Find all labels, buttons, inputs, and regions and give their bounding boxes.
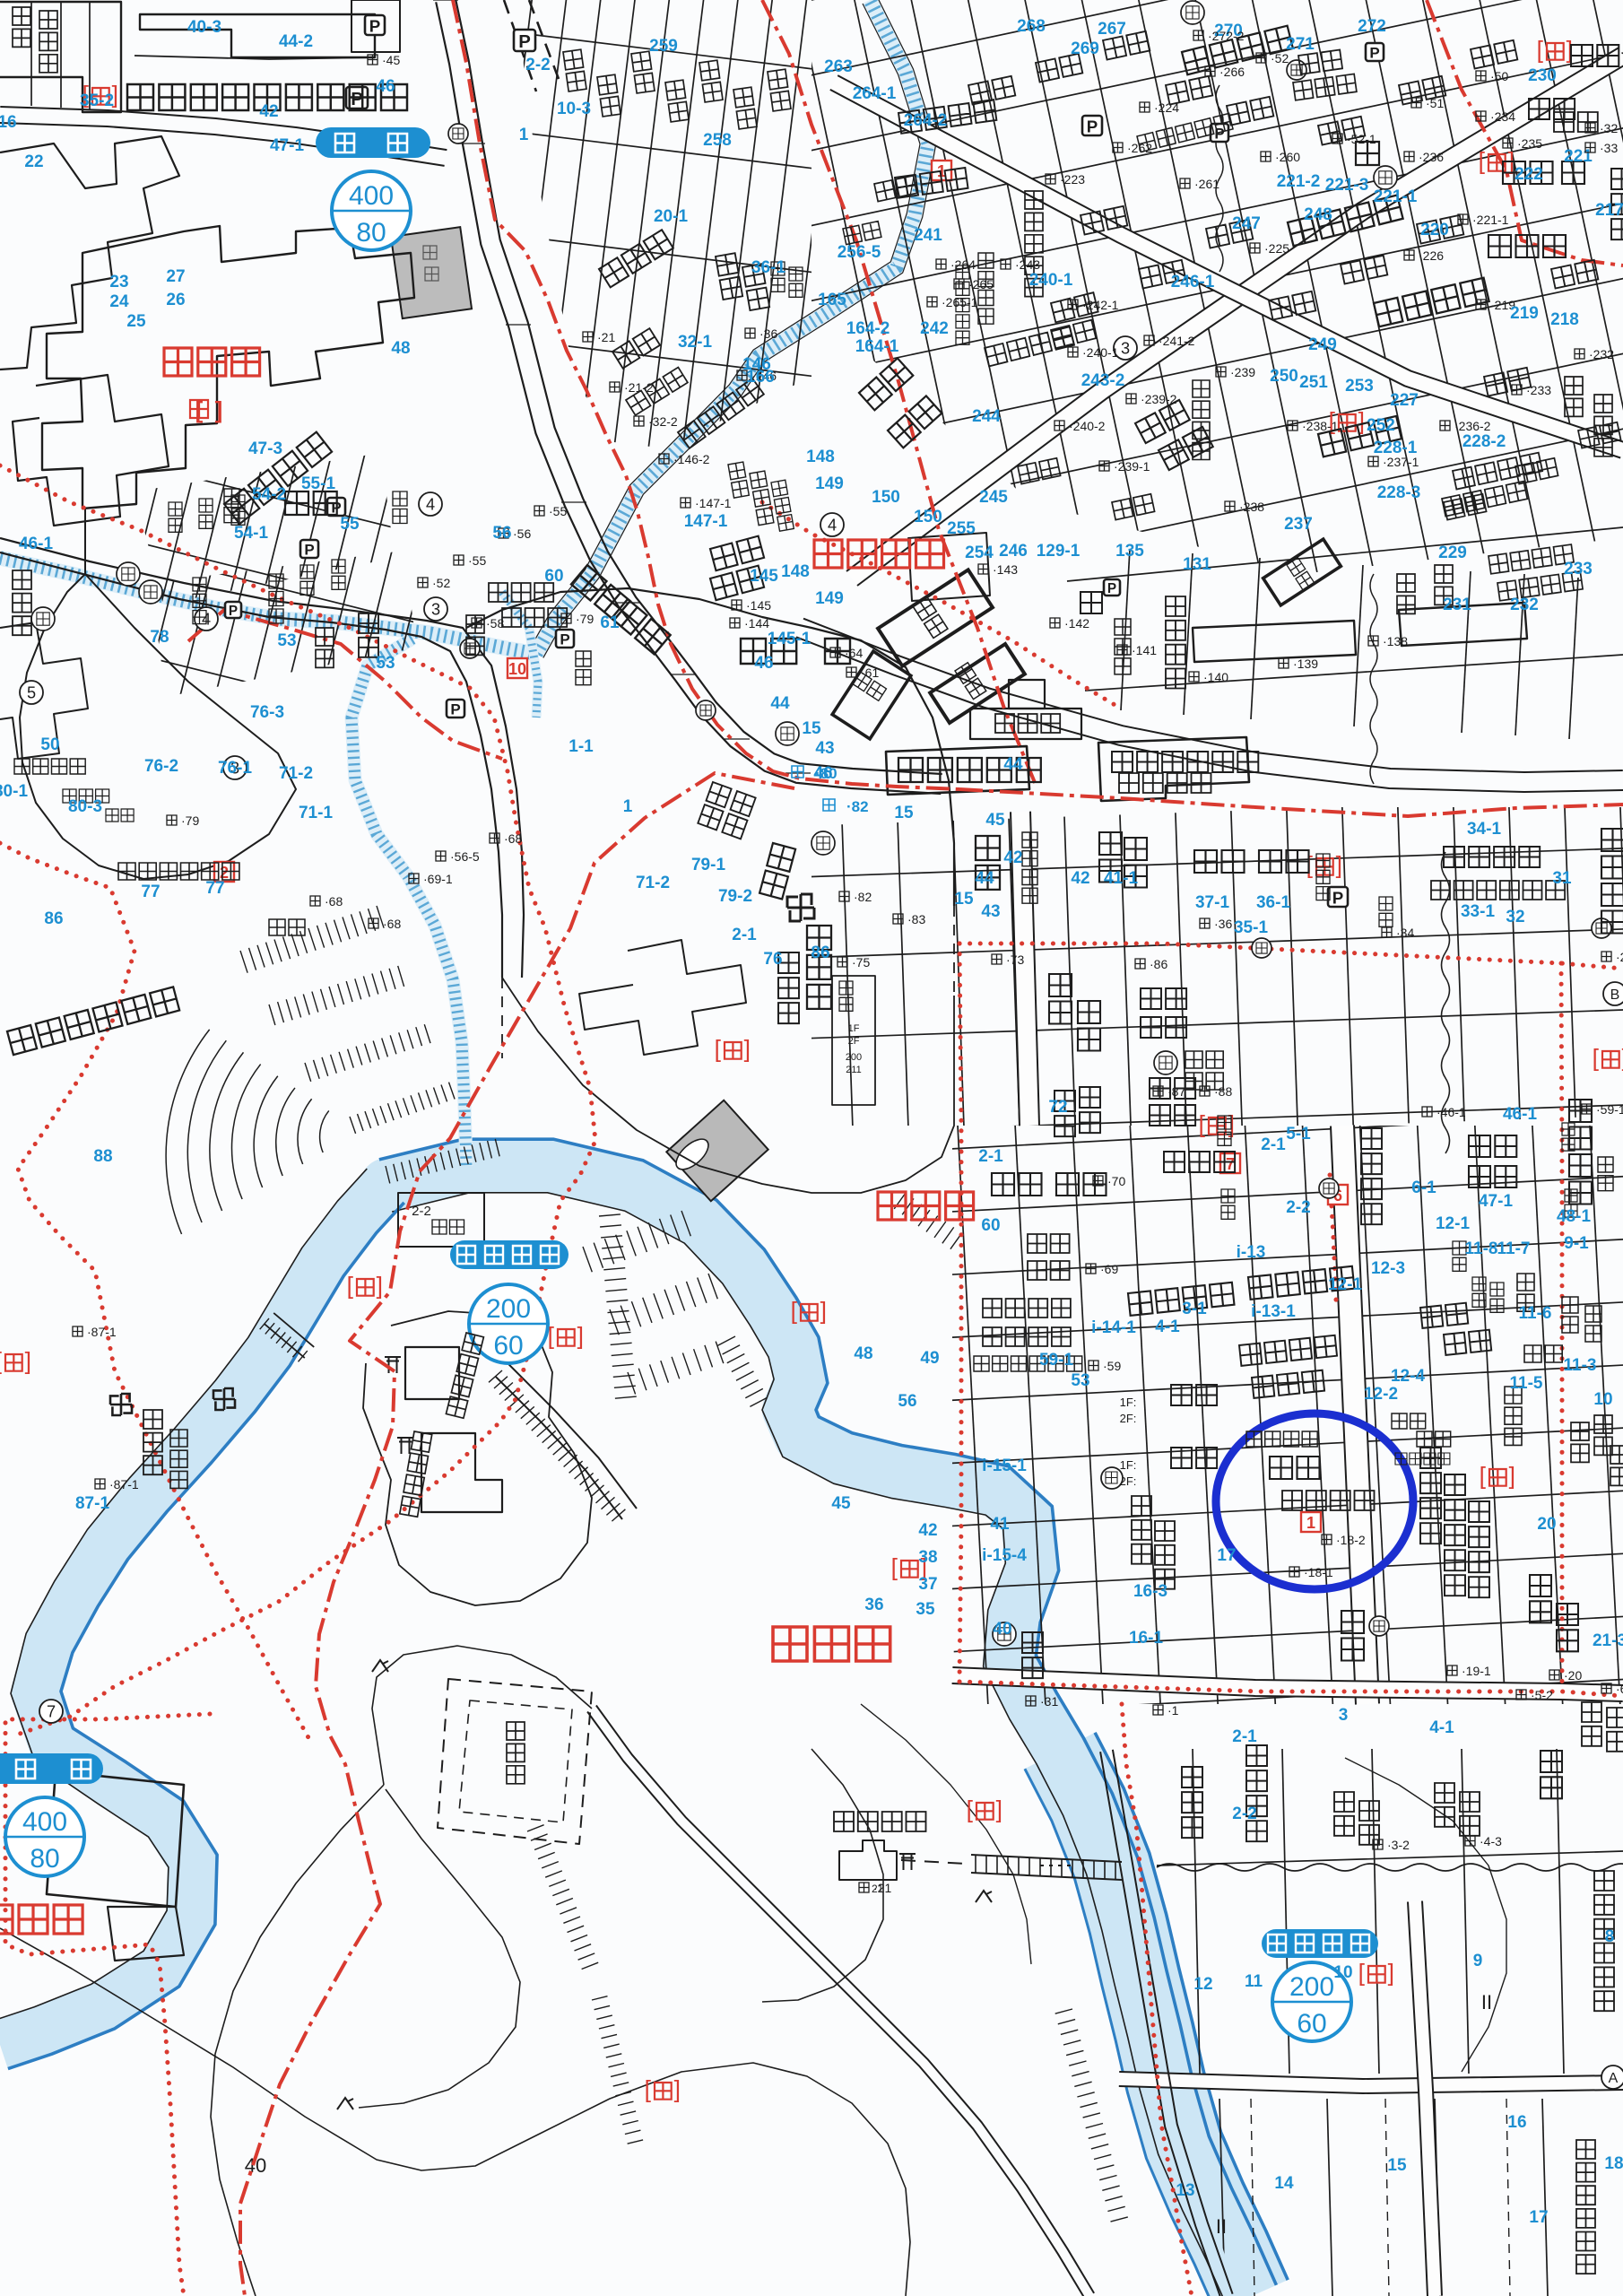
svg-text:1F: 1F xyxy=(848,1023,860,1034)
svg-text:17: 17 xyxy=(1529,2208,1548,2227)
svg-text:A: A xyxy=(1609,2071,1619,2086)
svg-text:228-1: 228-1 xyxy=(1374,439,1418,457)
svg-text:[: [ xyxy=(1480,1463,1487,1490)
svg-text:10: 10 xyxy=(1333,1963,1352,1982)
svg-text:46-1: 46-1 xyxy=(19,535,53,553)
svg-text:221-3: 221-3 xyxy=(1325,176,1369,195)
svg-text:211: 211 xyxy=(846,1065,862,1075)
svg-text:·88: ·88 xyxy=(1214,1084,1232,1099)
svg-text:246-1: 246-1 xyxy=(1171,273,1215,291)
svg-text:·61: ·61 xyxy=(861,665,879,680)
svg-text:76-2: 76-2 xyxy=(144,757,178,776)
svg-text:2-1: 2-1 xyxy=(1232,1727,1257,1746)
svg-text:P: P xyxy=(1087,117,1098,135)
svg-text:249: 249 xyxy=(1308,335,1337,354)
svg-text:6-1: 6-1 xyxy=(1411,1178,1436,1197)
svg-text:·56: ·56 xyxy=(513,526,531,541)
svg-text:·82: ·82 xyxy=(846,798,869,815)
svg-text:[: [ xyxy=(791,1298,798,1325)
svg-text:·51: ·51 xyxy=(1426,96,1444,110)
svg-text:·3-2: ·3-2 xyxy=(1387,1838,1410,1852)
svg-text:3: 3 xyxy=(1121,340,1130,358)
svg-text:25: 25 xyxy=(126,312,146,331)
svg-text:228-2: 228-2 xyxy=(1462,432,1506,451)
svg-text:254: 254 xyxy=(965,544,994,562)
svg-text:P: P xyxy=(351,90,363,109)
svg-text:37: 37 xyxy=(918,1575,937,1594)
svg-text:·143: ·143 xyxy=(993,562,1018,577)
svg-text:86: 86 xyxy=(811,944,829,962)
svg-text:18: 18 xyxy=(1604,2154,1623,2173)
svg-text:·262: ·262 xyxy=(1127,141,1152,155)
svg-text:1F:: 1F: xyxy=(1120,1396,1137,1409)
svg-text:42: 42 xyxy=(918,1521,937,1540)
svg-text:[: [ xyxy=(347,1273,354,1300)
svg-text:16-3: 16-3 xyxy=(1133,1582,1167,1601)
svg-text:53: 53 xyxy=(376,654,395,673)
svg-text:42: 42 xyxy=(1071,869,1089,888)
svg-text:]: ] xyxy=(744,1036,751,1063)
svg-text:244: 244 xyxy=(972,407,1001,426)
svg-text:31: 31 xyxy=(1552,869,1572,888)
svg-text:·223: ·223 xyxy=(1060,172,1085,187)
svg-text:135: 135 xyxy=(1115,542,1144,561)
svg-text:·6: ·6 xyxy=(1616,1682,1623,1696)
svg-text:258: 258 xyxy=(703,131,732,150)
svg-text:]: ] xyxy=(377,1273,383,1300)
svg-text:]: ] xyxy=(996,1796,1002,1823)
svg-text:·68: ·68 xyxy=(325,894,343,909)
svg-text:·5-2: ·5-2 xyxy=(1531,1688,1553,1702)
svg-text:45: 45 xyxy=(831,1494,851,1513)
svg-text:35-2: 35-2 xyxy=(80,91,114,110)
svg-text:88: 88 xyxy=(93,1147,112,1166)
svg-text:·240-2: ·240-2 xyxy=(1069,419,1106,433)
svg-text:·46-1: ·46-1 xyxy=(1436,1105,1466,1119)
svg-text:264-1: 264-1 xyxy=(853,84,897,103)
svg-text:10-3: 10-3 xyxy=(557,100,591,118)
svg-text:·144: ·144 xyxy=(744,616,769,631)
svg-text:·45: ·45 xyxy=(382,53,400,67)
svg-text:50: 50 xyxy=(40,735,59,754)
svg-text:·145: ·145 xyxy=(746,598,771,613)
svg-text:48-1: 48-1 xyxy=(1557,1207,1591,1226)
svg-text:·52: ·52 xyxy=(432,576,450,590)
svg-text:227: 227 xyxy=(1390,391,1419,410)
svg-text:16: 16 xyxy=(0,113,17,132)
svg-text:60: 60 xyxy=(544,567,563,586)
svg-text:220: 220 xyxy=(1420,221,1449,239)
svg-text:·239: ·239 xyxy=(1230,365,1255,379)
svg-text:·56-5: ·56-5 xyxy=(450,849,480,864)
svg-text:231: 231 xyxy=(1443,596,1471,614)
svg-text:1-1: 1-1 xyxy=(568,737,594,756)
svg-text:35: 35 xyxy=(916,1600,935,1619)
svg-text:1F:: 1F: xyxy=(1120,1458,1137,1472)
svg-text:148: 148 xyxy=(781,562,810,581)
svg-text:·20: ·20 xyxy=(1564,1668,1582,1683)
svg-text:]: ] xyxy=(215,396,223,423)
svg-text:·87: ·87 xyxy=(1167,1084,1185,1099)
svg-text:·140: ·140 xyxy=(1203,670,1228,684)
svg-text:15: 15 xyxy=(802,719,821,738)
svg-text:47-3: 47-3 xyxy=(248,439,282,458)
svg-text:32: 32 xyxy=(1506,908,1524,926)
svg-text:8: 8 xyxy=(1605,1927,1615,1946)
svg-text:II: II xyxy=(1481,1991,1492,2013)
svg-text:80-1: 80-1 xyxy=(0,782,28,801)
svg-text:15: 15 xyxy=(894,804,914,822)
svg-text:·36: ·36 xyxy=(1214,917,1232,931)
svg-text:4-1: 4-1 xyxy=(1155,1318,1180,1336)
svg-text:247: 247 xyxy=(1232,214,1261,233)
svg-text:147-1: 147-1 xyxy=(684,512,728,531)
svg-text:10: 10 xyxy=(508,660,526,678)
svg-text:·272-2: ·272-2 xyxy=(1208,29,1245,43)
svg-text:80: 80 xyxy=(30,1844,59,1874)
svg-text:43: 43 xyxy=(815,739,834,758)
svg-text:II: II xyxy=(1216,2215,1227,2238)
svg-text:·233: ·233 xyxy=(1526,383,1551,397)
svg-text:242: 242 xyxy=(920,319,949,338)
svg-text:79-2: 79-2 xyxy=(718,887,752,906)
svg-text:221-2: 221-2 xyxy=(1277,172,1321,191)
svg-text:256-5: 256-5 xyxy=(838,243,881,262)
svg-text:·34: ·34 xyxy=(1396,926,1414,940)
svg-text:2-1: 2-1 xyxy=(1261,1135,1286,1154)
svg-text:53: 53 xyxy=(1071,1371,1089,1390)
svg-text:·68: ·68 xyxy=(383,917,401,931)
svg-text:269: 269 xyxy=(1071,39,1099,58)
svg-text:·87-1: ·87-1 xyxy=(87,1325,117,1339)
svg-text:255: 255 xyxy=(947,519,976,538)
svg-text:200: 200 xyxy=(1289,1972,1334,2002)
svg-text:76-3: 76-3 xyxy=(250,703,284,722)
svg-text:23: 23 xyxy=(109,273,128,291)
svg-text:·234: ·234 xyxy=(1490,109,1515,124)
svg-text:17: 17 xyxy=(1217,1546,1236,1565)
svg-text:61: 61 xyxy=(600,613,620,632)
svg-text:44: 44 xyxy=(975,869,994,888)
svg-text:20-1: 20-1 xyxy=(654,207,688,226)
svg-text:80-3: 80-3 xyxy=(68,797,102,816)
svg-text:221-1: 221-1 xyxy=(1374,187,1418,206)
svg-text:]: ] xyxy=(577,1323,584,1350)
svg-text:1: 1 xyxy=(519,126,529,144)
svg-text:264-2: 264-2 xyxy=(904,111,948,130)
svg-text:243-2: 243-2 xyxy=(1081,371,1125,390)
svg-text:10: 10 xyxy=(1593,1390,1612,1409)
svg-text:7: 7 xyxy=(47,1703,56,1721)
svg-text:·239-2: ·239-2 xyxy=(1141,392,1177,406)
svg-text:22: 22 xyxy=(24,152,43,171)
svg-text:[: [ xyxy=(1306,852,1314,879)
svg-text:·238: ·238 xyxy=(1239,500,1264,514)
svg-text:12-2: 12-2 xyxy=(1364,1385,1398,1404)
svg-text:P: P xyxy=(1369,45,1379,62)
svg-text:56: 56 xyxy=(492,524,511,543)
svg-text:i-13: i-13 xyxy=(1237,1243,1266,1262)
svg-text:150: 150 xyxy=(872,488,900,507)
svg-text:150: 150 xyxy=(914,508,942,526)
svg-text:228-3: 228-3 xyxy=(1377,483,1421,502)
svg-text:400: 400 xyxy=(22,1807,67,1837)
svg-text:12: 12 xyxy=(1193,1975,1212,1994)
svg-text:54-2: 54-2 xyxy=(252,485,286,504)
svg-text:·86: ·86 xyxy=(1150,957,1167,971)
svg-text:217: 217 xyxy=(1595,201,1623,220)
svg-text:·265-1: ·265-1 xyxy=(942,295,978,309)
svg-text:·1: ·1 xyxy=(1167,1703,1179,1718)
svg-text:4-1: 4-1 xyxy=(1429,1718,1454,1737)
svg-text:241: 241 xyxy=(914,226,942,245)
svg-text:2-2: 2-2 xyxy=(1286,1198,1310,1217)
svg-text:12-1: 12-1 xyxy=(1436,1214,1470,1233)
svg-text:248: 248 xyxy=(1304,205,1332,224)
svg-text:79-1: 79-1 xyxy=(691,856,725,874)
svg-text:45: 45 xyxy=(985,811,1005,830)
svg-text:[: [ xyxy=(645,2076,652,2103)
svg-text:·79: ·79 xyxy=(576,612,594,626)
svg-text:·18-2: ·18-2 xyxy=(1336,1533,1366,1547)
svg-text:·142: ·142 xyxy=(1064,616,1089,631)
svg-text:259: 259 xyxy=(649,37,678,56)
svg-text:41-1: 41-1 xyxy=(1104,869,1138,888)
svg-text:46: 46 xyxy=(754,654,773,673)
svg-text:·73: ·73 xyxy=(1006,952,1024,967)
svg-text:·52: ·52 xyxy=(1271,51,1289,65)
svg-text:·52-1: ·52-1 xyxy=(1347,132,1376,146)
svg-text:·55: ·55 xyxy=(468,553,486,568)
svg-text:11-6: 11-6 xyxy=(1519,1304,1552,1323)
svg-text:·264: ·264 xyxy=(950,257,976,272)
svg-text:[: [ xyxy=(1479,148,1486,175)
svg-text:60: 60 xyxy=(1297,2009,1326,2039)
svg-text:164-2: 164-2 xyxy=(846,319,890,338)
svg-text:·224: ·224 xyxy=(1154,100,1179,115)
svg-text:P: P xyxy=(369,16,380,35)
svg-text:131: 131 xyxy=(1183,555,1211,574)
svg-text:·241-2: ·241-2 xyxy=(1159,334,1195,348)
svg-text:54-1: 54-1 xyxy=(234,524,268,543)
svg-text:·50: ·50 xyxy=(1490,69,1508,83)
svg-text:[: [ xyxy=(1593,1045,1600,1072)
svg-text:·236-2: ·236-2 xyxy=(1454,419,1491,433)
svg-text:71-2: 71-2 xyxy=(636,874,670,892)
svg-text:71-2: 71-2 xyxy=(279,764,313,783)
svg-text:i-15-4: i-15-4 xyxy=(982,1546,1027,1565)
svg-text:272: 272 xyxy=(1358,17,1386,36)
svg-text:·31: ·31 xyxy=(1040,1694,1058,1709)
svg-text:11-7: 11-7 xyxy=(1497,1239,1531,1258)
svg-text:43: 43 xyxy=(981,902,1000,921)
svg-text:56: 56 xyxy=(898,1392,916,1411)
svg-text:·236: ·236 xyxy=(1419,150,1444,164)
svg-text:]: ] xyxy=(1509,1463,1515,1490)
svg-text:36-1: 36-1 xyxy=(751,258,785,277)
svg-text:55: 55 xyxy=(340,515,360,534)
svg-text:14: 14 xyxy=(1274,2174,1294,2193)
svg-text:253: 253 xyxy=(1345,377,1374,396)
svg-text:·146-2: ·146-2 xyxy=(673,452,710,466)
svg-text:·261: ·261 xyxy=(1194,177,1219,191)
svg-text:77: 77 xyxy=(205,879,224,898)
svg-text:11-8: 11-8 xyxy=(1465,1239,1498,1258)
svg-text:11: 11 xyxy=(1245,1972,1263,1991)
svg-text:·68: ·68 xyxy=(504,831,522,846)
svg-text:·59-1: ·59-1 xyxy=(1596,1102,1623,1117)
svg-text:16-1: 16-1 xyxy=(1129,1629,1163,1648)
svg-text:166: 166 xyxy=(746,368,775,387)
svg-text:55-1: 55-1 xyxy=(301,474,335,493)
svg-text:i-15-1: i-15-1 xyxy=(982,1457,1027,1475)
svg-text:47-1: 47-1 xyxy=(270,136,304,155)
svg-text:218: 218 xyxy=(1550,310,1579,329)
svg-text:2-2: 2-2 xyxy=(525,56,550,74)
svg-text:·69-1: ·69-1 xyxy=(423,872,453,886)
svg-text:·21: ·21 xyxy=(597,330,615,344)
svg-text:·79: ·79 xyxy=(181,813,199,828)
svg-text:·141: ·141 xyxy=(1132,643,1157,657)
svg-text:72: 72 xyxy=(1048,1098,1067,1117)
svg-text:·226: ·226 xyxy=(1419,248,1444,263)
svg-text:·55: ·55 xyxy=(549,504,567,518)
svg-text:11-5: 11-5 xyxy=(1510,1374,1543,1393)
svg-text:·75: ·75 xyxy=(852,955,870,970)
svg-text:[: [ xyxy=(1199,1111,1206,1138)
svg-text:·221-1: ·221-1 xyxy=(1472,213,1509,227)
svg-text:48: 48 xyxy=(391,339,410,358)
svg-text:148: 148 xyxy=(806,448,835,466)
svg-text:[: [ xyxy=(1358,1960,1366,1987)
svg-text:·138: ·138 xyxy=(1383,634,1408,648)
svg-text:34-1: 34-1 xyxy=(1467,820,1501,839)
svg-text:36: 36 xyxy=(864,1596,883,1614)
svg-text:P: P xyxy=(560,631,569,648)
svg-text:9: 9 xyxy=(1473,1952,1483,1970)
svg-text:250: 250 xyxy=(1270,367,1298,386)
svg-text:27: 27 xyxy=(166,267,185,286)
svg-text:24: 24 xyxy=(109,292,129,311)
svg-text:3-1: 3-1 xyxy=(1182,1300,1207,1318)
svg-text:·32-2: ·32-2 xyxy=(648,414,678,429)
svg-text:[: [ xyxy=(1537,37,1544,64)
svg-text:·147-1: ·147-1 xyxy=(695,496,732,510)
svg-text:71-1: 71-1 xyxy=(299,804,333,822)
svg-text:251: 251 xyxy=(1299,373,1328,392)
svg-text:]: ] xyxy=(25,1348,31,1375)
svg-text:·266: ·266 xyxy=(1219,65,1245,79)
svg-text:P: P xyxy=(518,32,531,52)
svg-text:271: 271 xyxy=(1286,35,1315,54)
svg-text:164-1: 164-1 xyxy=(855,337,899,356)
svg-text:222: 222 xyxy=(1515,165,1543,184)
svg-text:129-1: 129-1 xyxy=(1037,542,1081,561)
svg-text:·240-1: ·240-1 xyxy=(1082,345,1119,360)
svg-text:20: 20 xyxy=(1537,1515,1556,1534)
svg-text:21-3: 21-3 xyxy=(1593,1631,1623,1650)
svg-text:·87-1: ·87-1 xyxy=(109,1477,139,1492)
svg-text:37-1: 37-1 xyxy=(1195,893,1229,912)
svg-text:·83: ·83 xyxy=(907,912,925,926)
svg-text:12-1: 12-1 xyxy=(1328,1275,1362,1294)
svg-text:40-3: 40-3 xyxy=(187,18,221,37)
svg-text:59-1: 59-1 xyxy=(1039,1351,1073,1370)
svg-text:[: [ xyxy=(548,1323,555,1350)
svg-text:76-1: 76-1 xyxy=(218,759,252,778)
svg-text:4: 4 xyxy=(426,496,435,514)
svg-text:P: P xyxy=(304,542,314,559)
svg-text:]: ] xyxy=(820,1298,827,1325)
svg-text:·69: ·69 xyxy=(1100,1262,1118,1276)
svg-text:·36: ·36 xyxy=(759,326,777,341)
svg-text:400: 400 xyxy=(349,181,394,211)
svg-text:·80: ·80 xyxy=(815,765,838,782)
svg-text:246: 246 xyxy=(999,542,1028,561)
svg-text:44: 44 xyxy=(770,694,790,713)
svg-text:·28: ·28 xyxy=(1616,950,1623,964)
svg-text:4: 4 xyxy=(828,517,837,535)
svg-text:46: 46 xyxy=(376,77,395,96)
svg-text:149: 149 xyxy=(815,589,844,608)
svg-text:3: 3 xyxy=(1339,1706,1349,1725)
svg-text:[: [ xyxy=(715,1036,722,1063)
svg-text:·139: ·139 xyxy=(1293,657,1318,671)
svg-text:35-1: 35-1 xyxy=(1234,918,1268,937)
svg-text:3: 3 xyxy=(431,601,440,619)
svg-text:33-1: 33-1 xyxy=(1461,902,1495,921)
svg-text:15: 15 xyxy=(954,890,974,909)
svg-text:245: 245 xyxy=(979,488,1008,507)
svg-text:5-1: 5-1 xyxy=(1286,1125,1311,1144)
svg-text:P: P xyxy=(229,604,238,619)
svg-text:·33: ·33 xyxy=(1600,141,1618,155)
svg-text:165: 165 xyxy=(818,291,846,309)
svg-text:·21-2: ·21-2 xyxy=(624,380,654,395)
svg-text:i-13-1: i-13-1 xyxy=(1251,1302,1296,1321)
svg-text:2-1: 2-1 xyxy=(732,926,757,944)
svg-text:16: 16 xyxy=(1507,2113,1526,2132)
svg-text:·64: ·64 xyxy=(845,646,863,660)
svg-text:268: 268 xyxy=(1017,17,1046,36)
svg-text:·235: ·235 xyxy=(1517,136,1542,151)
svg-text:40: 40 xyxy=(993,1620,1011,1639)
svg-text:·21: ·21 xyxy=(873,1881,891,1895)
svg-text:5: 5 xyxy=(27,684,36,702)
svg-text:200: 200 xyxy=(486,1294,531,1324)
svg-text:2F:: 2F: xyxy=(1120,1412,1137,1425)
svg-text:44-2: 44-2 xyxy=(279,32,313,51)
svg-text:·19-1: ·19-1 xyxy=(1462,1664,1491,1678)
svg-text:1: 1 xyxy=(623,797,633,816)
svg-text:P: P xyxy=(1107,581,1116,596)
svg-text:·238-1: ·238-1 xyxy=(1302,419,1339,433)
svg-text:240-1: 240-1 xyxy=(1029,271,1073,290)
svg-text:11-3: 11-3 xyxy=(1564,1356,1597,1375)
svg-text:149: 149 xyxy=(815,474,844,493)
svg-text:2-2: 2-2 xyxy=(1232,1805,1256,1823)
svg-text:13: 13 xyxy=(1176,2181,1194,2200)
svg-text:·265: ·265 xyxy=(968,277,994,291)
svg-text:53: 53 xyxy=(277,631,296,650)
svg-text:2-1: 2-1 xyxy=(978,1147,1003,1166)
svg-text:1: 1 xyxy=(1306,1514,1315,1532)
svg-text:]: ] xyxy=(1336,852,1342,879)
svg-text:267: 267 xyxy=(1098,20,1126,39)
svg-text:·242-1: ·242-1 xyxy=(1082,298,1119,312)
svg-text:48: 48 xyxy=(854,1344,872,1363)
svg-text:]: ] xyxy=(1388,1960,1394,1987)
